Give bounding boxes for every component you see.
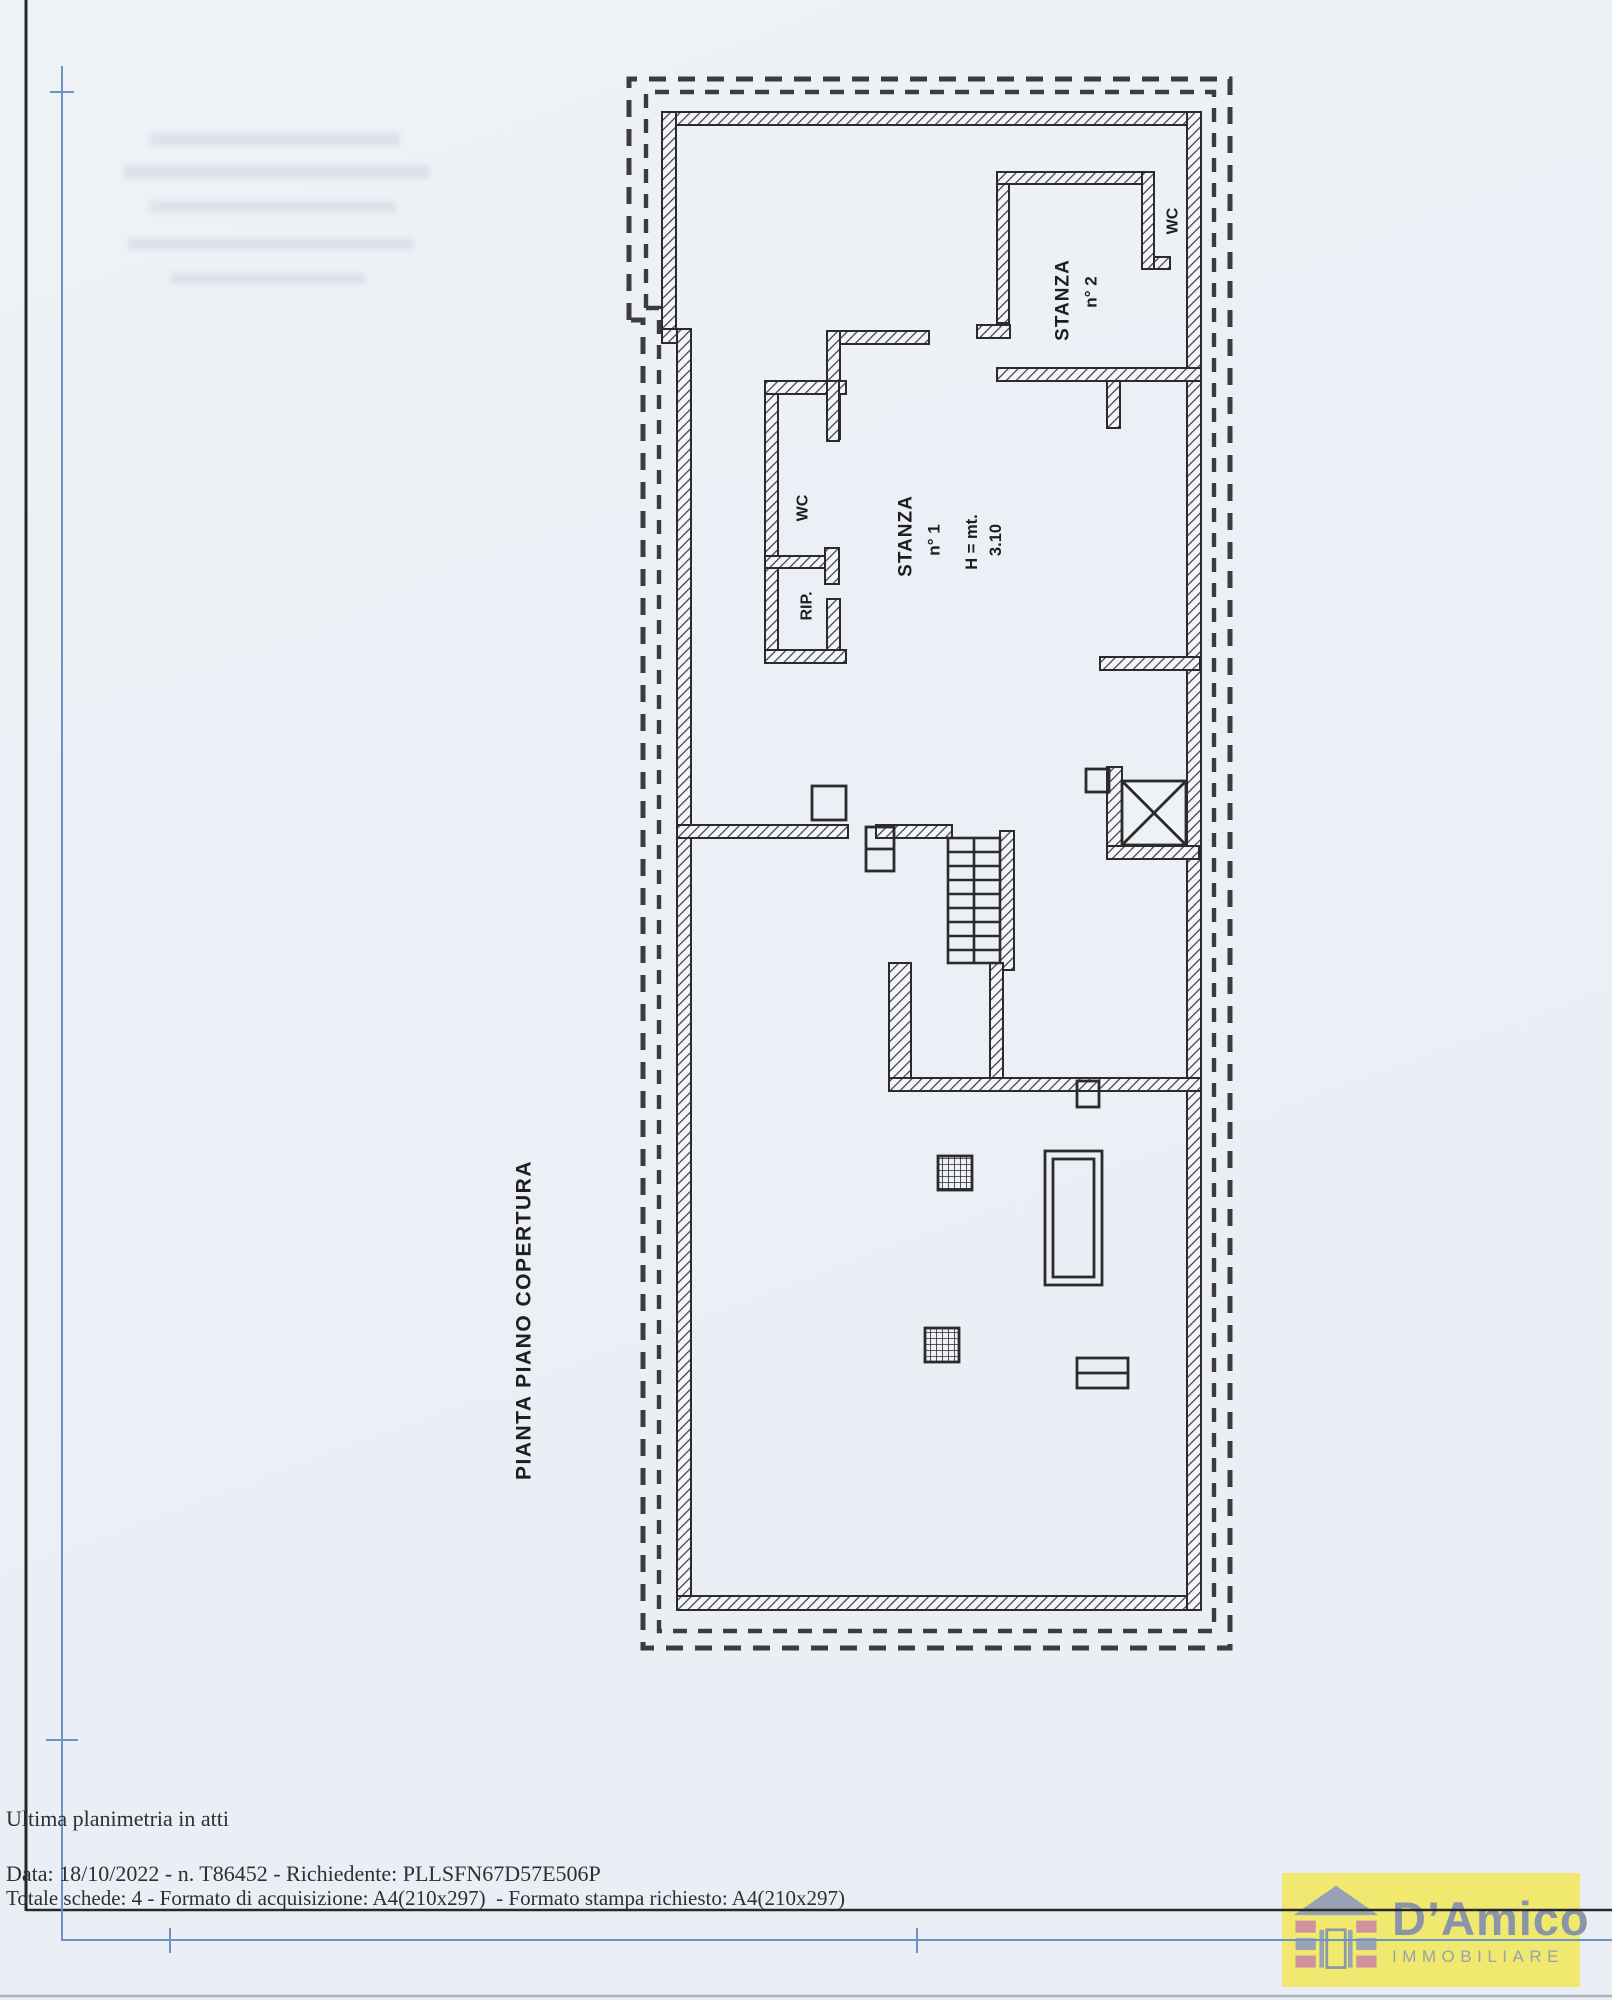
room-label-stanza2: STANZA — [1053, 259, 1074, 341]
room-height-value: 3.10 — [987, 524, 1005, 556]
door-shape — [1327, 1929, 1345, 1967]
agency-logo: D’Amico IMMOBILIARE — [1282, 1873, 1580, 1987]
logo-brand-text: D’Amico — [1392, 1895, 1590, 1942]
room-label-stanza1: STANZA — [896, 495, 917, 577]
elevator-shaft — [1122, 781, 1186, 845]
plan-title: PIANTA PIANO COPERTURA — [513, 1160, 536, 1480]
stairs — [948, 838, 1000, 963]
roof-fixtures — [812, 769, 1128, 1388]
room-number-stanza1: n° 1 — [925, 524, 944, 555]
room-label-wc2: WC — [1165, 207, 1182, 234]
roof-shape — [1294, 1885, 1379, 1914]
footer-schede-line: Totale schede: 4 - Formato di acquisizio… — [6, 1886, 845, 1911]
house-icon — [1290, 1882, 1382, 1979]
room-height-label: H = mt. — [963, 514, 981, 569]
scanned-cadastral-document: D’Amico IMMOBILIARE Ultima planimetria i… — [0, 0, 1612, 2000]
room-number-stanza2: n° 2 — [1082, 276, 1101, 307]
page-frame — [0, 0, 1612, 1996]
plan-labels: PIANTA PIANO COPERTURA STANZA n° 1 H = m… — [513, 207, 1182, 1480]
room-label-wc1: WC — [795, 494, 812, 521]
walls — [662, 112, 1201, 1610]
floor-plan-drawing: PIANTA PIANO COPERTURA STANZA n° 1 H = m… — [0, 0, 1612, 2000]
dashed-boundary — [629, 79, 1230, 1648]
room-label-rip: RIP. — [799, 591, 816, 620]
logo-subtitle-text: IMMOBILIARE — [1392, 1948, 1590, 1965]
footer-note: Ultima planimetria in atti — [6, 1806, 229, 1832]
registration-lines — [46, 66, 1612, 1953]
footer-data-line: Data: 18/10/2022 - n. T86452 - Richieden… — [6, 1861, 601, 1887]
ghost-bleedthrough-marks — [124, 133, 430, 284]
